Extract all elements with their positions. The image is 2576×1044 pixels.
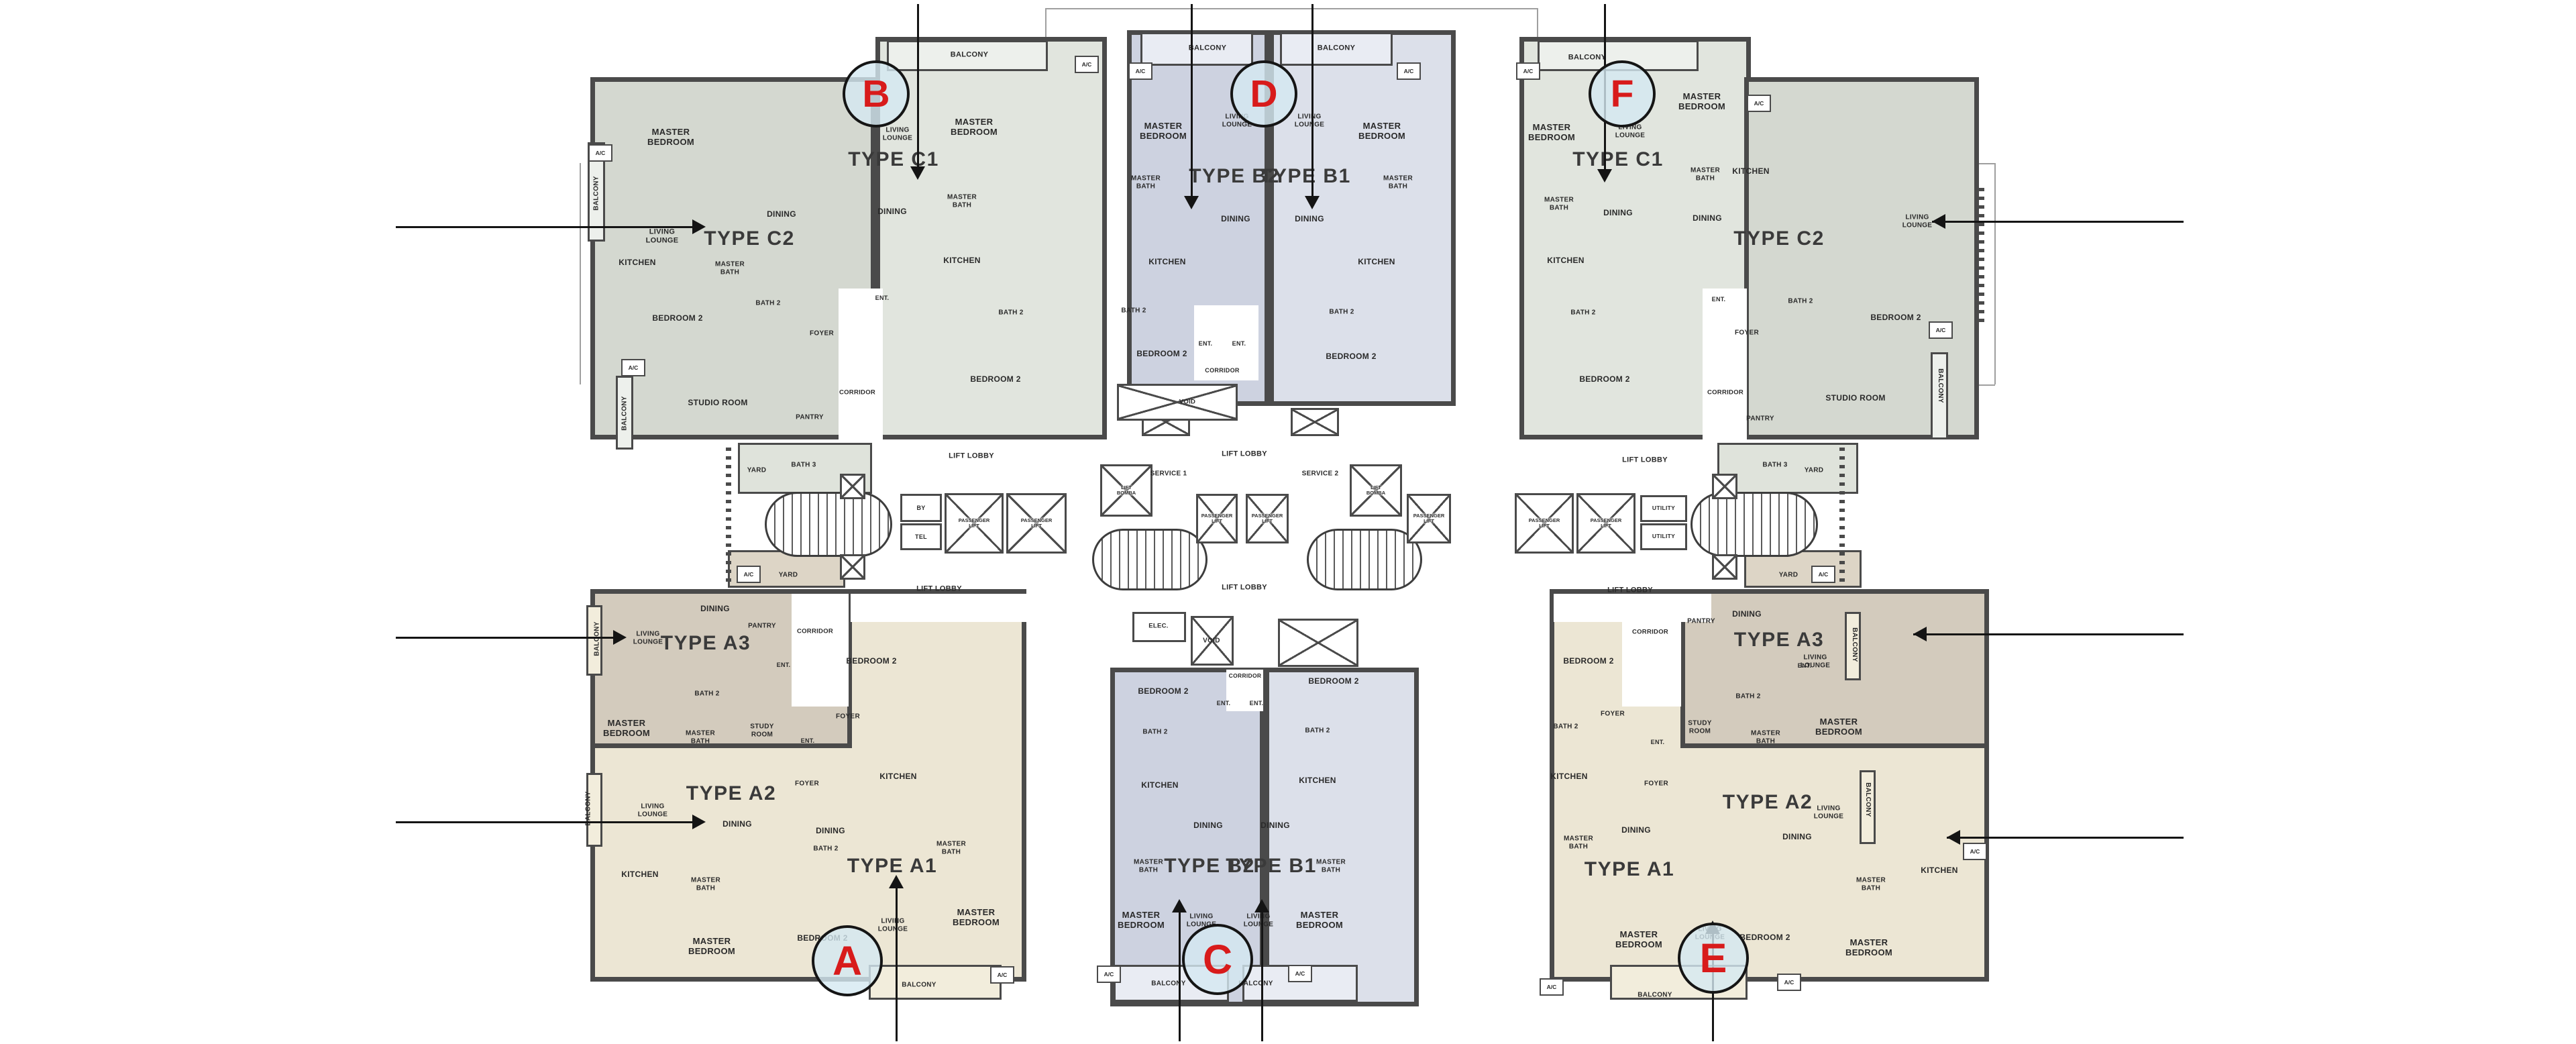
staircase [1092, 529, 1207, 590]
room-label: MASTER BATH [1131, 175, 1161, 191]
room-label: BALCONY [1936, 368, 1944, 403]
boundary-line [580, 163, 581, 384]
lift-shaft: PASSENGER LIFT [1196, 494, 1238, 543]
room-label: FOYER [810, 329, 834, 337]
unit-type-b1-bottom [1265, 668, 1419, 1006]
room-label: DINING [1221, 215, 1250, 224]
unit-type-label: TYPE A3 [1734, 629, 1824, 651]
room-label: MASTER BATH [1751, 730, 1780, 745]
room-label: PANTRY [748, 622, 776, 630]
lift-shaft: PASSENGER LIFT [1407, 494, 1451, 543]
room-label: DINING [1732, 610, 1762, 619]
room-label: LIFT LOBBY [1607, 586, 1653, 595]
entrance-arrow-line [1932, 221, 2184, 223]
room-label: DINING [1295, 215, 1324, 224]
room-label: CORRIDOR [1229, 673, 1262, 680]
room-label: BEDROOM 2 [1138, 687, 1188, 696]
room-label: KITCHEN [1141, 781, 1178, 790]
room-label: BATH 2 [1329, 308, 1354, 316]
room-label: BALCONY [593, 621, 601, 656]
room-label: ENT. [1217, 700, 1231, 707]
void-shaft [1291, 408, 1339, 436]
room-label: MASTER BEDROOM [1528, 123, 1575, 143]
room-label: DINING [1603, 209, 1633, 218]
ac-box: A/C [1075, 56, 1099, 73]
unit-type-label: TYPE C2 [1733, 227, 1825, 250]
room-label: DINING [1621, 826, 1651, 835]
room-label: MASTER BATH [936, 841, 966, 856]
entrance-arrow-head [613, 630, 627, 645]
room-label: FOYER [836, 713, 860, 721]
room-label: MASTER BATH [1564, 835, 1593, 851]
room-label: DINING [767, 210, 796, 219]
room-label: KITCHEN [1148, 258, 1185, 267]
unit-type-label: TYPE C1 [848, 148, 939, 171]
room-label: BATH 2 [1788, 297, 1813, 305]
room-label: LIVING LOUNGE [646, 227, 679, 244]
ac-box: A/C [990, 966, 1014, 984]
room-label: MASTER BEDROOM [1296, 910, 1343, 931]
section-marker-b: B [843, 60, 910, 127]
unit-type-label: TYPE C1 [1572, 148, 1664, 171]
lift-shaft: PASSENGER LIFT [945, 493, 1004, 554]
entrance-arrow-head [1184, 196, 1199, 209]
room-label: BATH 2 [1121, 307, 1146, 315]
entrance-arrow-head [1932, 214, 1945, 229]
room-label: MASTER BEDROOM [1615, 930, 1662, 950]
room-label: BATH 2 [694, 690, 719, 698]
room-label: ELEC. [1148, 623, 1168, 631]
room-label: DINING [1782, 833, 1812, 842]
section-marker-a: A [812, 925, 883, 996]
dimension-ticks [1839, 444, 1845, 582]
room-label: LIVING LOUNGE [633, 631, 663, 646]
room-label: ENT. [1199, 340, 1213, 347]
room-label: FOYER [1644, 780, 1668, 788]
room-label: DINING [722, 820, 752, 829]
lift-shaft: PASSENGER LIFT [1246, 494, 1289, 543]
lift-shaft: LIFT BOMBA [1100, 464, 1152, 517]
room-label: YARD [1805, 466, 1824, 474]
ac-box: A/C [588, 144, 612, 162]
room-label: DINING [816, 827, 845, 836]
room-label: BALCONY [1318, 44, 1356, 53]
room-label: BEDROOM 2 [652, 314, 702, 323]
unit-type-label: TYPE A1 [847, 855, 937, 878]
room-label: PANTRY [1746, 415, 1774, 423]
staircase [765, 492, 892, 557]
room-label: BEDROOM 2 [1563, 657, 1613, 666]
ac-box: A/C [1747, 95, 1771, 112]
room-label: STUDY ROOM [750, 723, 773, 739]
room-label: BATH 3 [1762, 461, 1787, 469]
room-label: MASTER BATH [1690, 167, 1720, 182]
room-label: MASTER BATH [691, 877, 720, 892]
room-label: BEDROOM 2 [1326, 352, 1376, 362]
boundary-line [1045, 8, 1538, 9]
room-label: BALCONY [1850, 627, 1858, 662]
room-label: LIFT LOBBY [1222, 584, 1267, 592]
room-label: LIVING LOUNGE [1902, 214, 1933, 229]
room-label: CORRIDOR [1707, 390, 1743, 397]
room-label: FOYER [1601, 710, 1625, 718]
ac-box: A/C [1288, 965, 1312, 982]
room-label: KITCHEN [1358, 258, 1395, 267]
room-label: ENT. [1798, 662, 1812, 669]
room-label: VOID [1179, 399, 1195, 407]
entrance-arrow-head [692, 219, 706, 234]
room-label: PANTRY [1687, 617, 1715, 625]
room-label: SERVICE 2 [1302, 470, 1339, 478]
room-label: DINING [1193, 821, 1223, 831]
corridor-cutout [839, 289, 883, 439]
room-label: BEDROOM 2 [1136, 350, 1187, 359]
room-label: BALCONY [1568, 54, 1607, 62]
room-label: VOID [1203, 637, 1220, 645]
staircase [1690, 492, 1818, 557]
room-label: LIVING LOUNGE [1244, 913, 1274, 929]
entrance-arrow-head [889, 875, 904, 888]
entrance-arrow-line [1947, 837, 2184, 839]
room-label: ENT. [777, 662, 791, 668]
room-label: MASTER BEDROOM [688, 937, 735, 957]
room-label: YARD [1779, 571, 1799, 579]
ac-box: A/C [1128, 62, 1152, 80]
room-label: UTILITY [1652, 505, 1675, 512]
room-label: MASTER BEDROOM [1815, 717, 1862, 737]
room-label: BATH 2 [998, 309, 1023, 317]
room-label: FOYER [1735, 329, 1759, 337]
entrance-arrow-line [917, 4, 919, 166]
room-label: BALCONY [1151, 980, 1186, 988]
room-label: KITCHEN [621, 870, 658, 880]
entrance-arrow-line [1913, 633, 2184, 635]
room-label: BATH 2 [1570, 309, 1595, 317]
room-label: KITCHEN [1299, 776, 1336, 786]
room-label: LIFT LOBBY [1222, 450, 1267, 459]
room-label: ENT. [1651, 739, 1665, 745]
room-label: MASTER BATH [947, 194, 977, 209]
entrance-arrow-line [1261, 912, 1263, 1041]
room-label: MASTER BATH [1316, 859, 1346, 874]
entrance-arrow-line [896, 888, 898, 1041]
room-label: BATH 2 [813, 845, 838, 853]
room-label: MASTER BATH [1544, 197, 1574, 212]
dimension-ticks [1979, 188, 1984, 322]
room-label: MASTER BEDROOM [1118, 910, 1165, 931]
unit-type-label: TYPE C2 [704, 227, 795, 250]
unit-type-label: TYPE A2 [686, 782, 776, 805]
room-label: CORRIDOR [839, 390, 875, 397]
room-label: ENT. [1712, 296, 1726, 303]
void-shaft [840, 554, 865, 580]
room-label: BALCONY [621, 396, 629, 431]
room-label: DINING [1260, 821, 1290, 831]
dimension-ticks [726, 444, 731, 582]
room-label: SERVICE 1 [1150, 470, 1187, 478]
entrance-arrow-line [396, 226, 692, 228]
room-label: BATH 2 [755, 299, 780, 307]
room-label: UTILITY [1652, 533, 1675, 540]
room-label: BEDROOM 2 [1579, 375, 1629, 384]
room-label: KITCHEN [619, 258, 655, 268]
room-label: LIVING LOUNGE [878, 918, 908, 933]
entrance-arrow-head [1305, 196, 1320, 209]
entrance-arrow-line [1311, 4, 1313, 196]
room-label: CORRIDOR [1632, 629, 1668, 637]
ac-box: A/C [1777, 974, 1801, 991]
corridor-cutout [792, 594, 849, 707]
room-label: KITCHEN [879, 772, 916, 782]
room-label: KITCHEN [1921, 866, 1957, 876]
room-label: LIVING LOUNGE [638, 803, 668, 819]
section-marker-e: E [1678, 923, 1749, 994]
room-label: DINING [700, 605, 730, 614]
entrance-arrow-head [1947, 830, 1960, 845]
room-label: MASTER BEDROOM [647, 127, 694, 148]
room-label: ENT. [1232, 340, 1246, 347]
room-label: BATH 2 [1142, 728, 1167, 736]
room-label: MASTER BATH [715, 261, 745, 276]
section-marker-c: C [1182, 924, 1253, 995]
room-label: MASTER BEDROOM [1845, 938, 1892, 958]
room-label: LIVING LOUNGE [1295, 113, 1325, 129]
ac-box: A/C [1097, 965, 1121, 983]
unit-type-label: TYPE A1 [1585, 858, 1674, 881]
room-label: STUDIO ROOM [688, 399, 747, 408]
room-label: BALCONY [1638, 991, 1672, 999]
entrance-arrow-line [1179, 912, 1181, 1041]
room-label: ENT. [1250, 700, 1264, 707]
room-label: STUDY ROOM [1688, 720, 1711, 735]
room-label: BATH 2 [1735, 692, 1760, 700]
entrance-arrow-head [1172, 899, 1187, 912]
ac-box: A/C [1963, 843, 1987, 860]
room-label: KITCHEN [1547, 256, 1584, 266]
void-shaft [1712, 474, 1737, 499]
room-label: KITCHEN [1732, 167, 1769, 176]
room-label: TEL [915, 533, 927, 540]
room-label: MASTER BEDROOM [1678, 92, 1725, 112]
room-label: BEDROOM 2 [1739, 933, 1790, 943]
room-label: BATH 2 [1305, 727, 1330, 735]
ac-box: A/C [621, 359, 645, 376]
section-marker-d: D [1230, 60, 1297, 127]
room-label: CORRIDOR [1205, 367, 1239, 374]
ac-box: A/C [1540, 978, 1564, 996]
room-label: MASTER BEDROOM [603, 719, 650, 739]
room-label: BALCONY [951, 51, 989, 60]
room-label: MASTER BATH [686, 730, 715, 745]
ac-box: A/C [1929, 321, 1953, 339]
service-room-box [1717, 443, 1858, 494]
lift-shaft: PASSENGER LIFT [1576, 493, 1635, 554]
room-label: LIFT LOBBY [949, 452, 994, 461]
floor-plan: PASSENGER LIFTPASSENGER LIFTLIFT BOMBAPA… [0, 0, 2576, 1044]
room-label: LIFT LOBBY [1622, 456, 1668, 465]
boundary-line [1045, 8, 1046, 39]
ac-box: A/C [737, 566, 761, 583]
lift-shaft: LIFT BOMBA [1350, 464, 1402, 517]
corridor-cutout [851, 594, 1026, 622]
boundary-line [1994, 163, 1996, 384]
room-label: PANTRY [796, 413, 824, 421]
boundary-line [1537, 8, 1538, 39]
room-label: BEDROOM 2 [970, 375, 1020, 384]
entrance-arrow-head [1254, 899, 1269, 912]
entrance-arrow-head [910, 166, 925, 180]
entrance-arrow-head [1913, 627, 1927, 641]
void-shaft [1278, 619, 1358, 667]
room-label: MASTER BEDROOM [951, 117, 998, 138]
room-label: BEDROOM 2 [1870, 313, 1921, 323]
room-label: ENT. [875, 295, 890, 301]
room-label: BALCONY [1189, 44, 1227, 53]
room-label: BALCONY [902, 981, 936, 989]
room-label: MASTER BEDROOM [1358, 121, 1405, 142]
room-label: FOYER [795, 780, 819, 788]
room-label: LIVING LOUNGE [883, 127, 913, 142]
room-label: MASTER BATH [1856, 877, 1886, 892]
room-label: BY [916, 505, 925, 511]
room-label: DINING [1693, 214, 1722, 223]
entrance-arrow-head [1597, 169, 1612, 182]
entrance-arrow-line [396, 821, 692, 823]
room-label: KITCHEN [943, 256, 980, 266]
unit-type-label: TYPE A2 [1723, 791, 1813, 814]
room-label: CORRIDOR [797, 629, 833, 636]
room-label: MASTER BEDROOM [1140, 121, 1187, 142]
room-label: BALCONY [1864, 782, 1872, 817]
section-marker-f: F [1589, 60, 1656, 127]
void-shaft [1117, 384, 1238, 421]
ac-box: A/C [1397, 62, 1421, 80]
room-label: LIFT LOBBY [916, 585, 962, 594]
room-label: MASTER BEDROOM [953, 908, 1000, 928]
entrance-arrow-head [692, 815, 706, 829]
unit-type-label: TYPE A3 [661, 632, 751, 655]
room-label: BEDROOM 2 [1308, 677, 1358, 686]
room-label: MASTER BATH [1383, 175, 1413, 191]
ac-box: A/C [1811, 566, 1835, 583]
void-shaft [1712, 554, 1737, 580]
room-label: KITCHEN [1550, 772, 1587, 782]
room-label: BATH 2 [1553, 723, 1578, 731]
room-label: STUDIO ROOM [1825, 394, 1885, 403]
lift-shaft: PASSENGER LIFT [1515, 493, 1574, 554]
lift-shaft: PASSENGER LIFT [1006, 493, 1067, 554]
entrance-arrow-line [1191, 4, 1193, 196]
room-label: YARD [747, 466, 767, 474]
entrance-arrow-line [396, 637, 613, 639]
room-label: MASTER BATH [1134, 859, 1163, 874]
room-label: YARD [779, 571, 798, 579]
void-shaft [840, 474, 865, 499]
room-label: DINING [877, 207, 907, 217]
room-label: BALCONY [592, 176, 600, 211]
ac-box: A/C [1516, 62, 1540, 80]
corridor-cutout [1703, 289, 1747, 439]
unit-type-label: TYPE B1 [1226, 855, 1317, 878]
room-label: BATH 3 [791, 461, 816, 469]
staircase [1307, 529, 1422, 590]
room-label: BEDROOM 2 [846, 657, 896, 666]
room-label: ENT. [801, 737, 815, 744]
unit-type-label: TYPE B1 [1260, 165, 1351, 188]
room-label: LIVING LOUNGE [1814, 805, 1844, 821]
